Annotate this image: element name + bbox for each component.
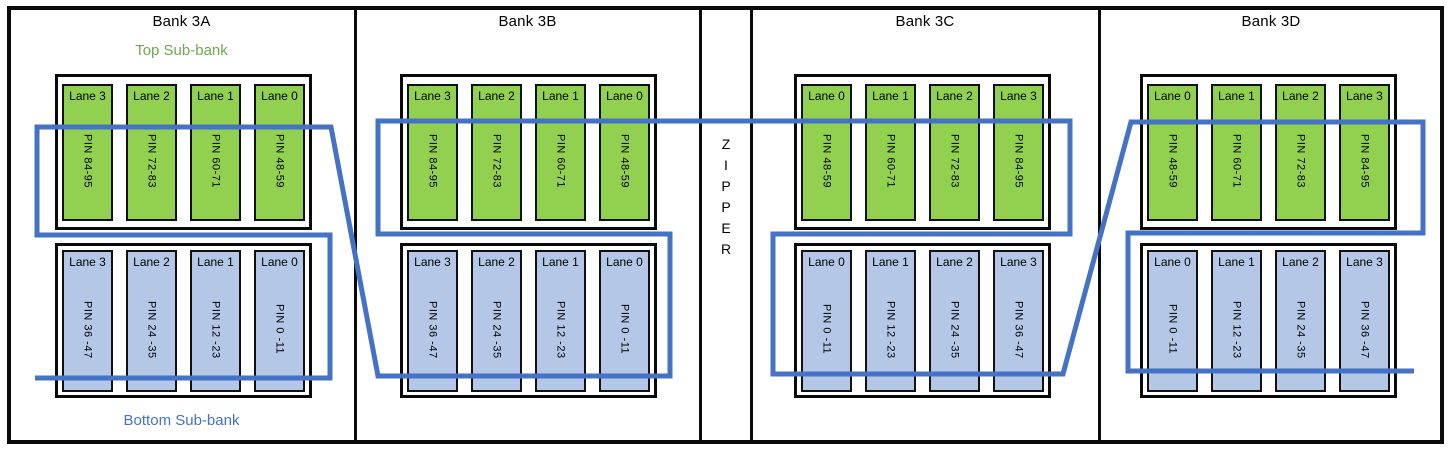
- lane-label: Lane 3: [995, 89, 1042, 103]
- bank-3b-bottom-subbank: Lane 3PIN 36 -47Lane 2PIN 24 -35Lane 1PI…: [400, 243, 657, 398]
- lane-label: Lane 3: [64, 89, 111, 103]
- lane-label: Lane 1: [537, 255, 584, 269]
- lane: Lane 0PIN 0 -11: [254, 250, 305, 392]
- lane-pin-label: PIN 72-83: [931, 103, 978, 219]
- lane-label: Lane 0: [1149, 255, 1196, 269]
- lane-pin-label: PIN 72-83: [473, 103, 520, 219]
- lane-pin-label: PIN 0 -11: [803, 269, 850, 390]
- lane-label: Lane 2: [473, 89, 520, 103]
- lane-pin-label: PIN 24 -35: [473, 269, 520, 390]
- lane: Lane 3PIN 84-95: [62, 84, 113, 221]
- bank-3d-title: Bank 3D: [1100, 13, 1442, 30]
- lane-pin-label: PIN 24 -35: [128, 269, 175, 390]
- lane: Lane 1PIN 12 -23: [1211, 250, 1262, 392]
- zipper-letter: P: [721, 176, 730, 197]
- lane-label: Lane 2: [931, 255, 978, 269]
- zipper-label: ZIPPER: [699, 134, 753, 260]
- lane: Lane 2PIN 72-83: [126, 84, 177, 221]
- zipper-letter: E: [721, 218, 730, 239]
- lane: Lane 0PIN 48-59: [801, 84, 852, 221]
- lane: Lane 0PIN 0 -11: [1147, 250, 1198, 392]
- lane: Lane 0PIN 48-59: [599, 84, 650, 221]
- bank-3d-bottom-subbank: Lane 0PIN 0 -11Lane 1PIN 12 -23Lane 2PIN…: [1140, 243, 1397, 398]
- lane: Lane 3PIN 36 -47: [993, 250, 1044, 392]
- lane-label: Lane 0: [1149, 89, 1196, 103]
- lane-label: Lane 2: [128, 255, 175, 269]
- lane-pin-label: PIN 48-59: [601, 103, 648, 219]
- lane: Lane 3PIN 84-95: [1339, 84, 1390, 221]
- lane-pin-label: PIN 48-59: [803, 103, 850, 219]
- bank-3d-top-subbank: Lane 0PIN 48-59Lane 1PIN 60-71Lane 2PIN …: [1140, 74, 1397, 230]
- lane-pin-label: PIN 0 -11: [601, 269, 648, 390]
- lane-pin-label: PIN 84-95: [409, 103, 456, 219]
- lane: Lane 1PIN 60-71: [535, 84, 586, 221]
- zipper-letter: R: [721, 239, 731, 260]
- bank-3c-bottom-subbank: Lane 0PIN 0 -11Lane 1PIN 12 -23Lane 2PIN…: [794, 243, 1051, 398]
- lane: Lane 2PIN 24 -35: [471, 250, 522, 392]
- lane-label: Lane 3: [1341, 255, 1388, 269]
- lane-label: Lane 0: [601, 89, 648, 103]
- lane-label: Lane 3: [409, 89, 456, 103]
- lane-pin-label: PIN 12 -23: [537, 269, 584, 390]
- lane-label: Lane 2: [1277, 89, 1324, 103]
- lane: Lane 3PIN 36 -47: [1339, 250, 1390, 392]
- zipper-letter: I: [724, 155, 728, 176]
- lane-label: Lane 0: [803, 255, 850, 269]
- lane-label: Lane 1: [1213, 255, 1260, 269]
- lane: Lane 0PIN 48-59: [1147, 84, 1198, 221]
- zipper-bank-diagram: Bank 3A Bank 3B Bank 3C Bank 3D Top Sub-…: [0, 0, 1452, 453]
- lane: Lane 3PIN 36 -47: [407, 250, 458, 392]
- lane: Lane 3PIN 84-95: [407, 84, 458, 221]
- lane: Lane 3PIN 84-95: [993, 84, 1044, 221]
- bank-3a-title: Bank 3A: [8, 13, 355, 30]
- lane-pin-label: PIN 36 -47: [409, 269, 456, 390]
- lane-pin-label: PIN 36 -47: [64, 269, 111, 390]
- lane-pin-label: PIN 0 -11: [1149, 269, 1196, 390]
- lane: Lane 2PIN 24 -35: [929, 250, 980, 392]
- lane-label: Lane 0: [256, 89, 303, 103]
- lane-pin-label: PIN 24 -35: [931, 269, 978, 390]
- bank-3a-top-subbank: Lane 3PIN 84-95Lane 2PIN 72-83Lane 1PIN …: [55, 74, 312, 230]
- lane-pin-label: PIN 12 -23: [867, 269, 914, 390]
- bank-3b-top-subbank: Lane 3PIN 84-95Lane 2PIN 72-83Lane 1PIN …: [400, 74, 657, 230]
- lane-label: Lane 0: [601, 255, 648, 269]
- lane-label: Lane 0: [803, 89, 850, 103]
- lane-label: Lane 2: [473, 255, 520, 269]
- lane-pin-label: PIN 12 -23: [1213, 269, 1260, 390]
- lane-label: Lane 1: [867, 255, 914, 269]
- lane-pin-label: PIN 48-59: [1149, 103, 1196, 219]
- lane-label: Lane 3: [64, 255, 111, 269]
- bank-divider-3c-3d: [1098, 6, 1101, 444]
- lane: Lane 2PIN 72-83: [471, 84, 522, 221]
- lane: Lane 1PIN 12 -23: [190, 250, 241, 392]
- bank-3a-bottom-subbank: Lane 3PIN 36 -47Lane 2PIN 24 -35Lane 1PI…: [55, 243, 312, 398]
- bank-3c-title: Bank 3C: [752, 13, 1098, 30]
- lane-label: Lane 1: [867, 89, 914, 103]
- lane-pin-label: PIN 48-59: [256, 103, 303, 219]
- lane-pin-label: PIN 60-71: [1213, 103, 1260, 219]
- lane-pin-label: PIN 84-95: [1341, 103, 1388, 219]
- lane: Lane 0PIN 0 -11: [801, 250, 852, 392]
- lane-pin-label: PIN 0 -11: [256, 269, 303, 390]
- lane: Lane 1PIN 60-71: [190, 84, 241, 221]
- lane-label: Lane 3: [995, 255, 1042, 269]
- lane: Lane 0PIN 48-59: [254, 84, 305, 221]
- lane-pin-label: PIN 60-71: [537, 103, 584, 219]
- lane-label: Lane 2: [1277, 255, 1324, 269]
- lane-label: Lane 1: [192, 89, 239, 103]
- lane-pin-label: PIN 36 -47: [1341, 269, 1388, 390]
- lane-pin-label: PIN 60-71: [192, 103, 239, 219]
- lane-label: Lane 1: [1213, 89, 1260, 103]
- zipper-letter: Z: [722, 134, 731, 155]
- lane: Lane 1PIN 60-71: [1211, 84, 1262, 221]
- lane-pin-label: PIN 12 -23: [192, 269, 239, 390]
- lane: Lane 2PIN 72-83: [929, 84, 980, 221]
- lane-pin-label: PIN 84-95: [995, 103, 1042, 219]
- zipper-letter: P: [721, 197, 730, 218]
- lane: Lane 1PIN 12 -23: [535, 250, 586, 392]
- lane: Lane 1PIN 60-71: [865, 84, 916, 221]
- lane: Lane 2PIN 72-83: [1275, 84, 1326, 221]
- lane-pin-label: PIN 84-95: [64, 103, 111, 219]
- lane-label: Lane 2: [931, 89, 978, 103]
- lane-pin-label: PIN 24 -35: [1277, 269, 1324, 390]
- bank-3b-title: Bank 3B: [355, 13, 700, 30]
- lane: Lane 2PIN 24 -35: [126, 250, 177, 392]
- lane-pin-label: PIN 72-83: [128, 103, 175, 219]
- lane-label: Lane 1: [537, 89, 584, 103]
- lane-label: Lane 3: [1341, 89, 1388, 103]
- lane-pin-label: PIN 60-71: [867, 103, 914, 219]
- lane-label: Lane 3: [409, 255, 456, 269]
- bank-3c-top-subbank: Lane 0PIN 48-59Lane 1PIN 60-71Lane 2PIN …: [794, 74, 1051, 230]
- lane-pin-label: PIN 36 -47: [995, 269, 1042, 390]
- bottom-subbank-caption: Bottom Sub-bank: [8, 412, 355, 429]
- lane-label: Lane 2: [128, 89, 175, 103]
- lane: Lane 0PIN 0 -11: [599, 250, 650, 392]
- lane: Lane 3PIN 36 -47: [62, 250, 113, 392]
- top-subbank-caption: Top Sub-bank: [8, 42, 355, 59]
- lane-label: Lane 1: [192, 255, 239, 269]
- bank-divider-3a-3b: [354, 6, 357, 444]
- lane-pin-label: PIN 72-83: [1277, 103, 1324, 219]
- lane: Lane 2PIN 24 -35: [1275, 250, 1326, 392]
- lane: Lane 1PIN 12 -23: [865, 250, 916, 392]
- lane-label: Lane 0: [256, 255, 303, 269]
